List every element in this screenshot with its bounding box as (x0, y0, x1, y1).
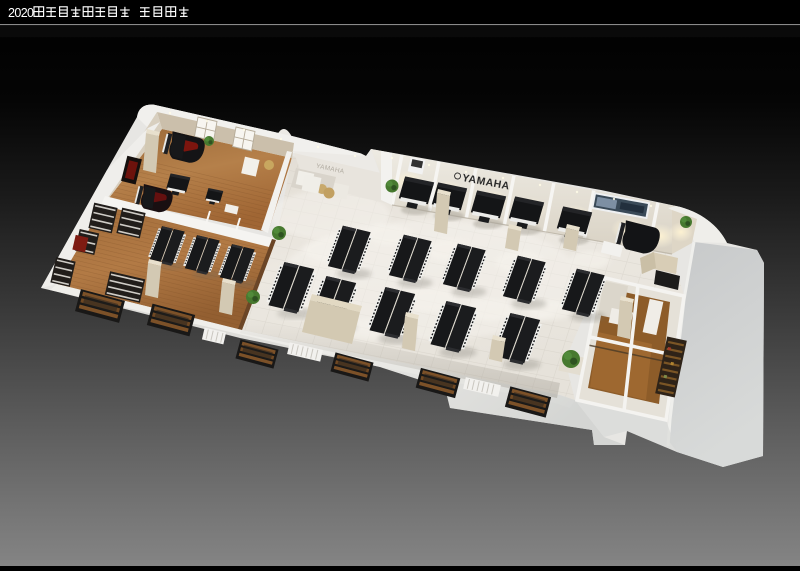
svg-text:2020: 2020 (8, 6, 34, 20)
